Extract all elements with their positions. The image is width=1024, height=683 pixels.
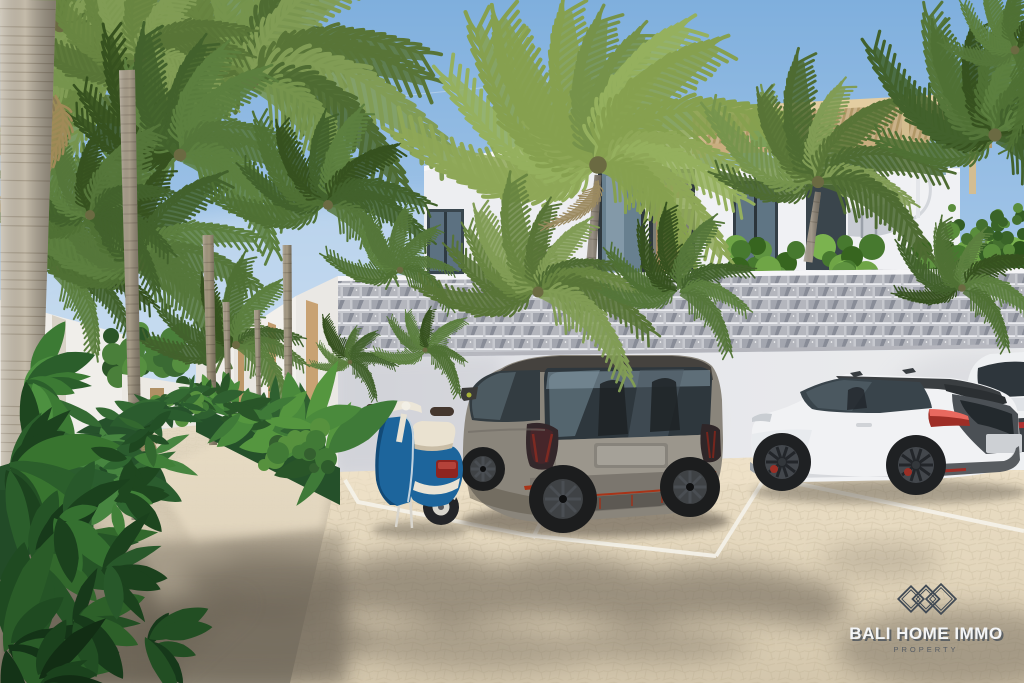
svg-text:PROPERTY: PROPERTY <box>893 645 958 654</box>
svg-text:BALI HOME IMMO: BALI HOME IMMO <box>849 624 1002 643</box>
